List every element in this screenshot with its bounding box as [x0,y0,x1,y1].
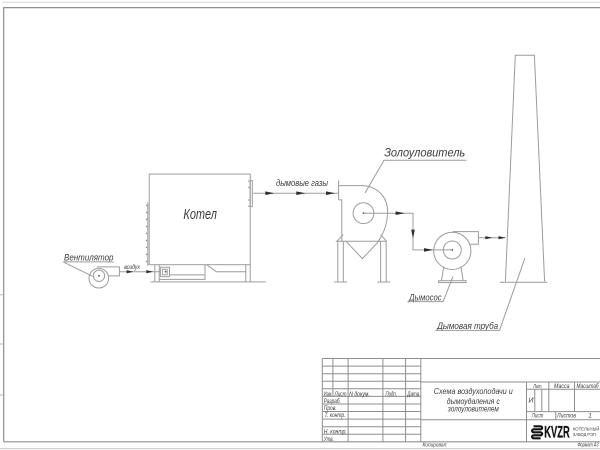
svg-text:Схема воздухоподачи и: Схема воздухоподачи и [434,387,514,396]
svg-text:Формат А3: Формат А3 [578,443,600,449]
svg-text:Разраб.: Разраб. [324,398,341,405]
svg-text:Подп.: Подп. [386,391,398,398]
svg-text:Котел: Котел [183,206,217,223]
svg-text:KVZR: KVZR [544,424,569,442]
svg-text:КОТЕЛЬНЫЙ: КОТЕЛЬНЫЙ [573,424,600,431]
svg-text:золоуловителем: золоуловителем [447,405,499,414]
svg-text:Т. контр.: Т. контр. [325,412,346,419]
svg-text:Дымосос: Дымосос [408,291,442,302]
svg-text:Масштаб: Масштаб [577,384,599,390]
svg-text:Дымовая труба: Дымовая труба [436,320,498,331]
svg-text:Лист: Лист [531,412,543,419]
svg-text:дымовые газы: дымовые газы [276,178,328,188]
svg-text:воздух: воздух [124,264,141,271]
svg-text:N докум.: N докум. [349,391,370,398]
svg-text:1: 1 [588,412,592,419]
svg-text:Листов: Листов [556,412,576,419]
svg-text:Утв.: Утв. [323,436,334,443]
svg-text:Золоуловитель: Золоуловитель [384,146,465,160]
svg-text:Копировал:: Копировал: [423,443,448,449]
svg-text:Пров.: Пров. [324,405,337,412]
svg-text:Масса: Масса [554,384,570,390]
svg-text:Лит.: Лит. [532,384,542,390]
svg-text:Н. контр.: Н. контр. [324,429,347,436]
svg-text:Дата: Дата [407,391,420,398]
svg-text:ЗАВОД РЭП: ЗАВОД РЭП [573,432,596,437]
